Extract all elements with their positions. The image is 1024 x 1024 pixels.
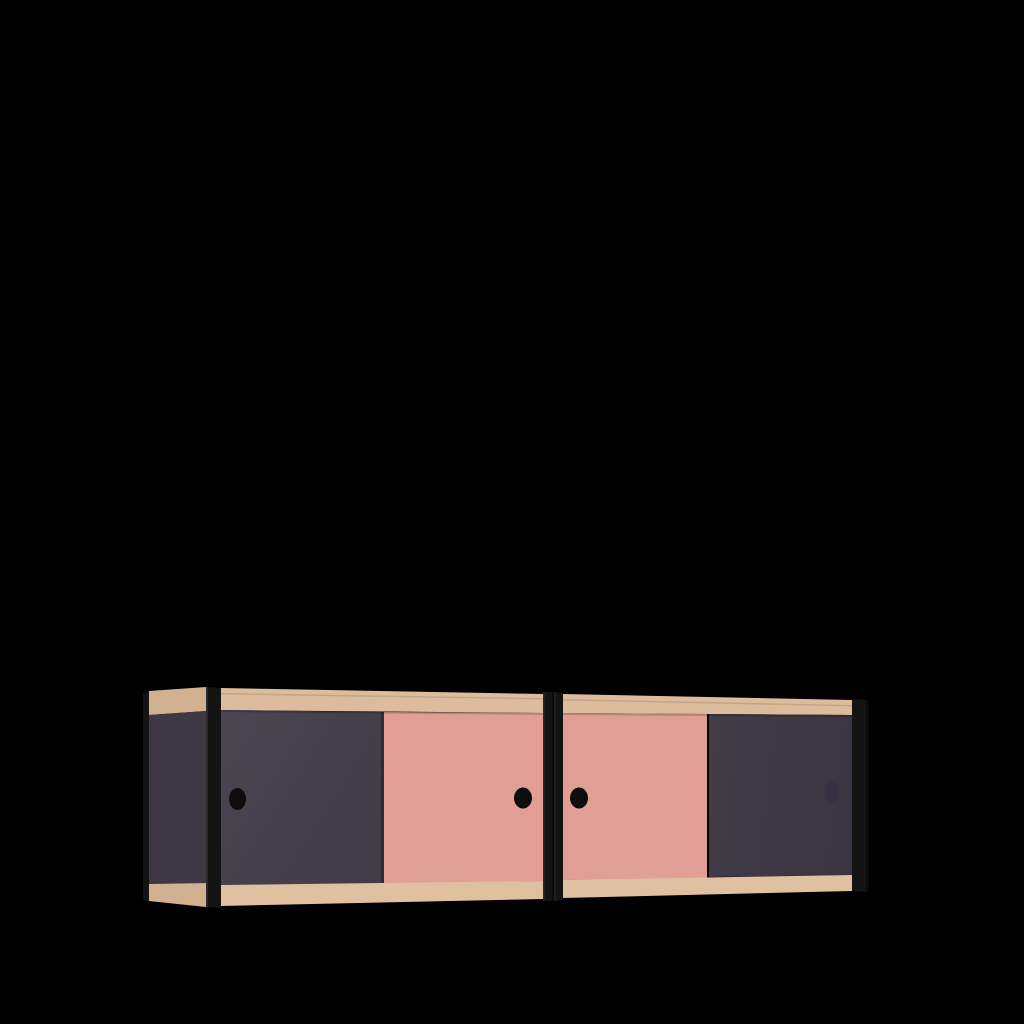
right-post-face bbox=[852, 699, 866, 892]
left-post bbox=[206, 687, 221, 908]
left-module bbox=[220, 688, 543, 906]
side-edge-rail bbox=[143, 691, 149, 902]
left-post-highlight bbox=[206, 687, 208, 907]
center-posts bbox=[543, 692, 563, 901]
finger-hole-left-pink-door bbox=[514, 788, 532, 809]
left-post-face bbox=[206, 687, 221, 908]
center-post-gap bbox=[552, 692, 554, 901]
right-post bbox=[852, 699, 869, 892]
product-image-canvas bbox=[0, 0, 1024, 1024]
sideboard-render bbox=[0, 0, 1024, 1024]
finger-hole-right-pink-door bbox=[570, 788, 588, 809]
right-module bbox=[563, 694, 852, 898]
center-post-right-highlight bbox=[554, 692, 556, 901]
left-side-panel bbox=[143, 687, 206, 907]
finger-hole-right-purple-door bbox=[825, 782, 839, 803]
door-gap-shadow-left-module bbox=[381, 712, 384, 885]
sideboard bbox=[143, 687, 869, 908]
right-post-edge bbox=[866, 700, 869, 892]
center-post-left-highlight bbox=[543, 692, 545, 901]
finger-hole-left-purple-door bbox=[229, 788, 246, 810]
side-panel-face bbox=[149, 711, 206, 884]
side-top-rail bbox=[149, 687, 206, 715]
